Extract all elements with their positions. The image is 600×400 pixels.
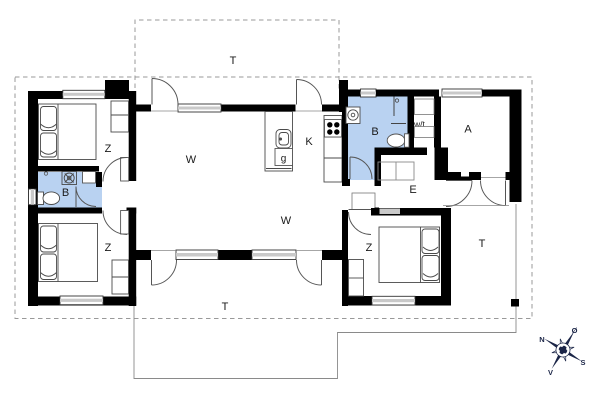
svg-text:B: B	[371, 126, 378, 138]
svg-text:Z: Z	[366, 242, 373, 254]
svg-text:N: N	[539, 335, 544, 344]
svg-text:A: A	[464, 124, 472, 136]
svg-text:S: S	[580, 358, 585, 367]
svg-text:K: K	[305, 136, 313, 148]
svg-text:Z: Z	[105, 143, 112, 155]
svg-text:B: B	[62, 187, 69, 199]
svg-text:T: T	[230, 55, 237, 67]
svg-text:Ø: Ø	[572, 326, 578, 335]
svg-text:W: W	[186, 154, 197, 166]
svg-text:T: T	[222, 301, 229, 313]
svg-text:E: E	[409, 184, 416, 196]
svg-text:V: V	[548, 368, 553, 377]
svg-text:Z: Z	[105, 242, 112, 254]
svg-text:g: g	[281, 154, 287, 165]
svg-text:T: T	[479, 238, 486, 250]
svg-text:W: W	[281, 215, 292, 227]
